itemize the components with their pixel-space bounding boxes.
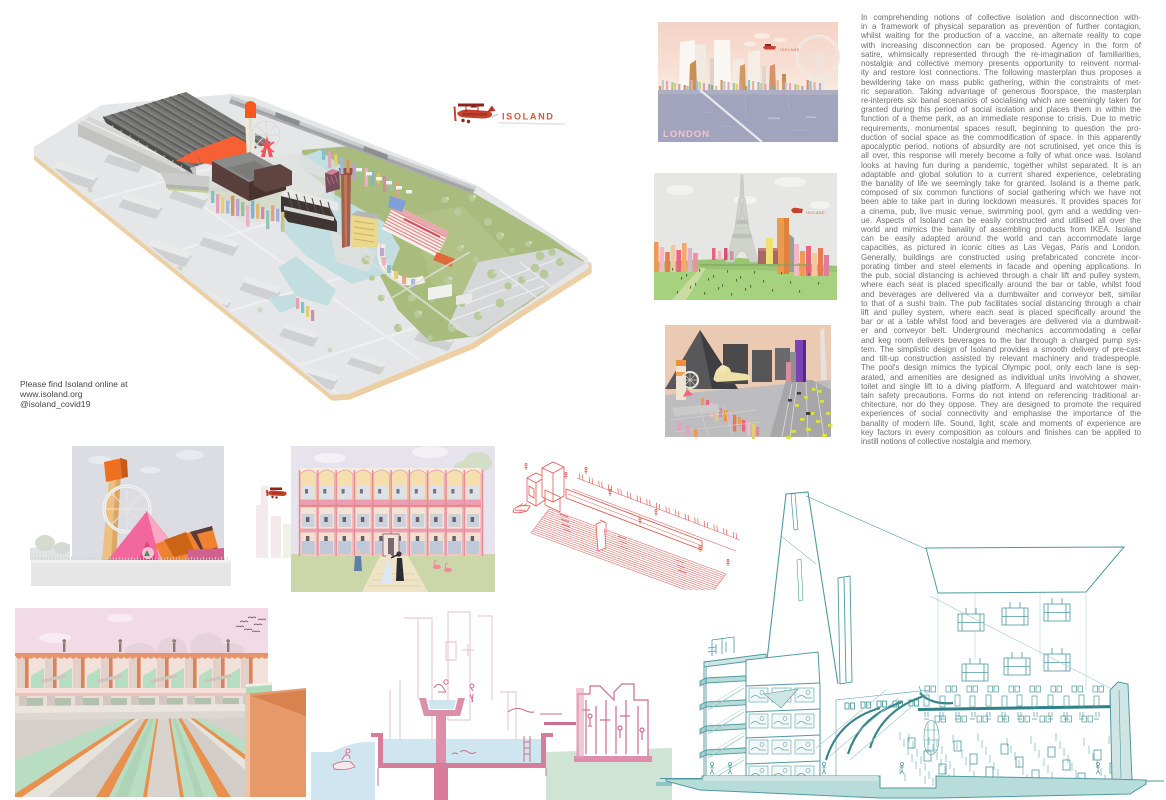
svg-text:LONDON: LONDON: [663, 129, 710, 140]
svg-text:ISOLAND: ISOLAND: [780, 48, 800, 52]
svg-text:ISOLAND: ISOLAND: [806, 211, 825, 215]
svg-text:ISOLAND: ISOLAND: [502, 112, 555, 122]
